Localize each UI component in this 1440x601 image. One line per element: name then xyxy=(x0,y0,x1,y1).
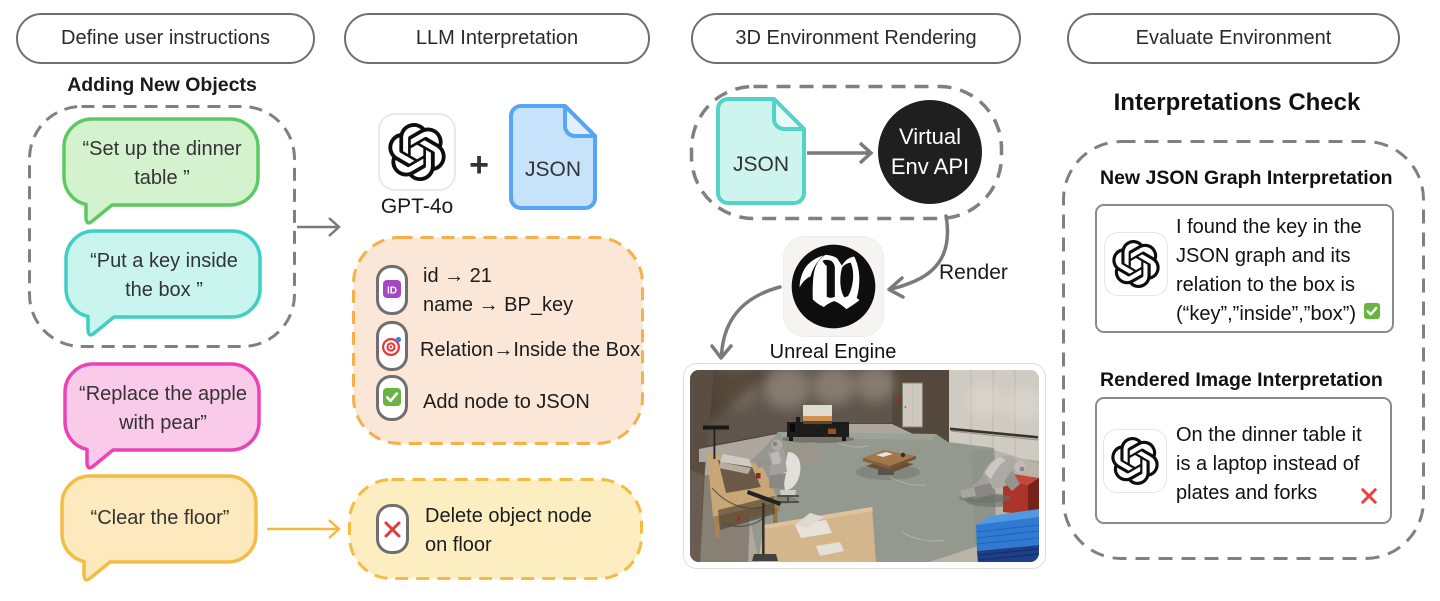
svg-text:JSON: JSON xyxy=(525,158,581,181)
svg-text:JSON: JSON xyxy=(733,153,789,176)
svg-text:ID: ID xyxy=(387,286,397,297)
